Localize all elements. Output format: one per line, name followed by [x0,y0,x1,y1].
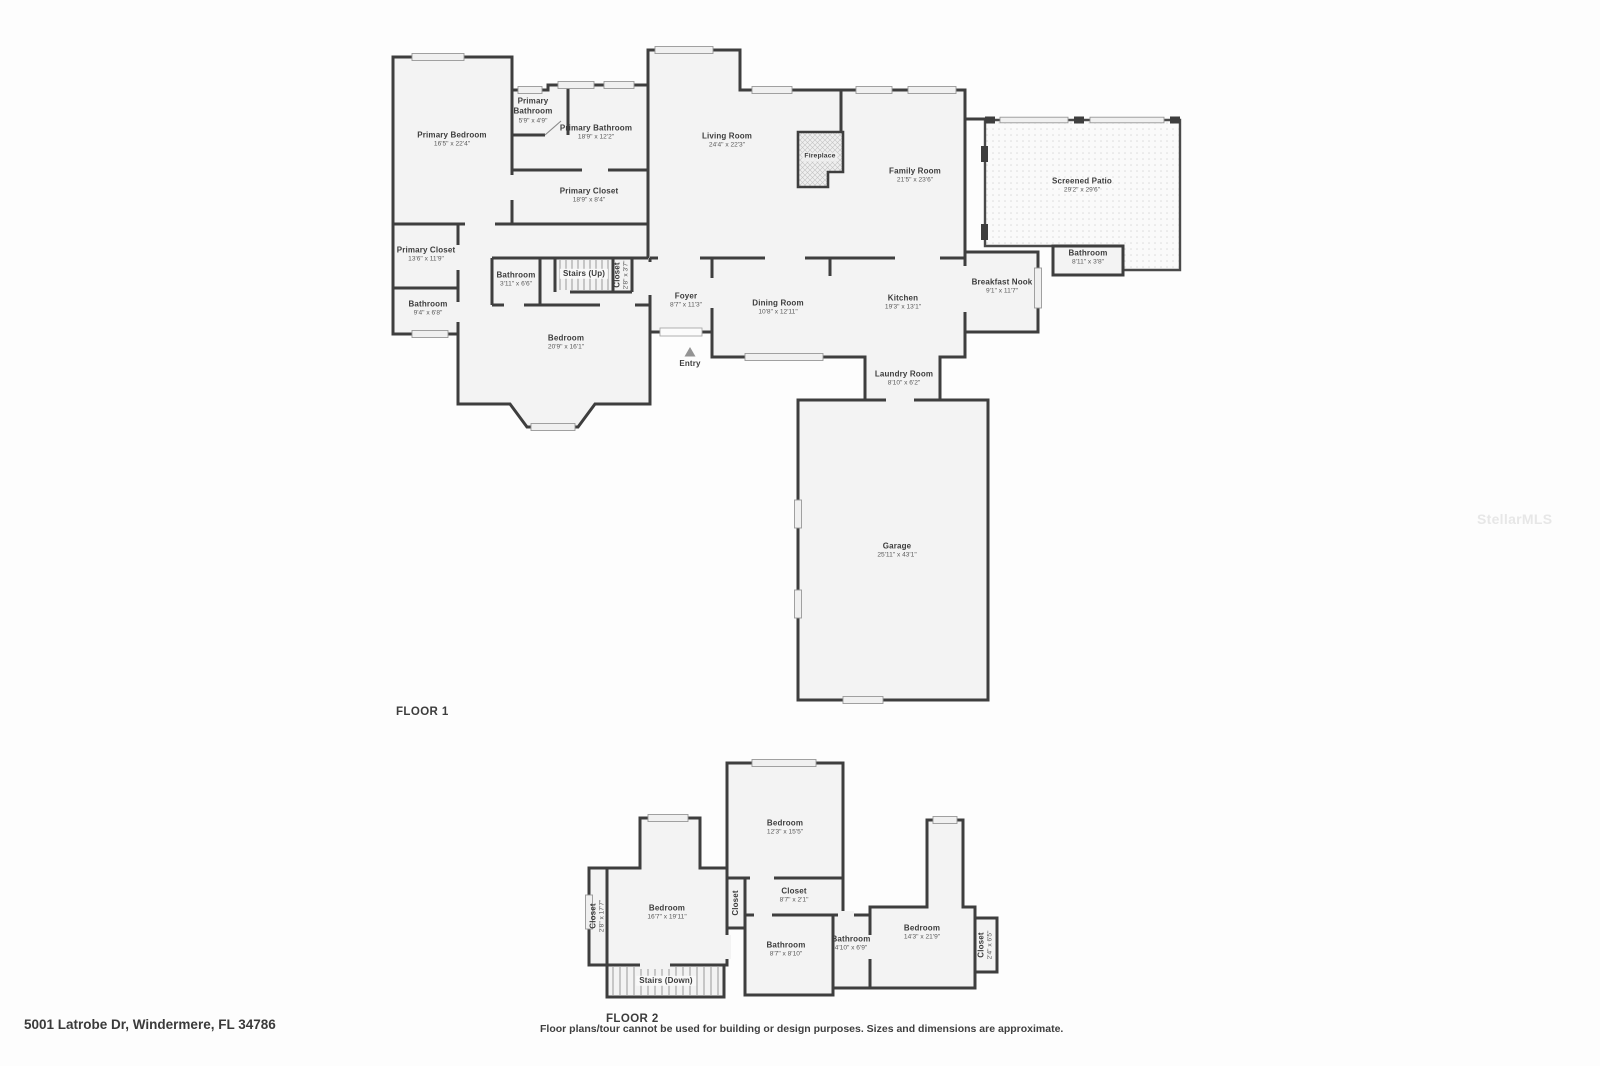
floorplan-page: Primary Bedroom16'5" x 22'4"Primary Bath… [0,0,1600,1066]
floor2-right-bedroom-outline [870,820,997,988]
floor1-house-outline [393,50,1038,700]
floor2-bathroom2-outline [833,915,870,988]
floor2-closet-band-outline [745,878,843,915]
entry-marker-icon [685,347,696,357]
stellar-mls-watermark: StellarMLS [1477,511,1552,527]
patio-bathroom-outline [1053,246,1123,275]
entry-door [660,328,702,336]
floor2-bathroom1-outline [745,915,833,995]
property-address: 5001 Latrobe Dr, Windermere, FL 34786 [24,1017,276,1032]
floor2-mid-closet-outline [727,878,745,928]
floorplan-drawing [0,0,1600,1066]
floor2-plan [586,760,998,998]
floor1-plan [393,47,1180,704]
floor2-stairs-outline [607,965,724,997]
floor2-middle-bedroom-outline [727,763,843,878]
floor1-caption: FLOOR 1 [396,706,449,718]
disclaimer-text: Floor plans/tour cannot be used for buil… [540,1023,1063,1035]
floor2-left-bedroom-outline [607,818,727,965]
